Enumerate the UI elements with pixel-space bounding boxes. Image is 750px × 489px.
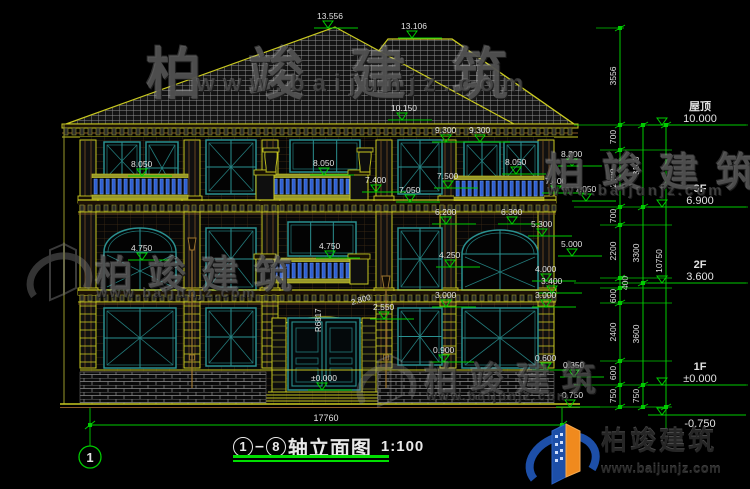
level-flag-label: 3F bbox=[694, 183, 707, 195]
dentil bbox=[472, 205, 476, 211]
level-flag-value: ±0.000 bbox=[683, 373, 717, 385]
eave-dentil bbox=[320, 128, 324, 135]
baluster bbox=[166, 179, 169, 194]
dentil bbox=[112, 205, 116, 211]
eave-dentil bbox=[168, 128, 172, 135]
level-flag-value: 10.000 bbox=[683, 113, 717, 125]
dentil bbox=[120, 205, 124, 211]
eave-dentil bbox=[160, 128, 164, 135]
dentil bbox=[128, 295, 132, 301]
dentil bbox=[176, 205, 180, 211]
dentil bbox=[528, 205, 532, 211]
dentil bbox=[80, 295, 84, 301]
elevation-marker-text: 0.600 bbox=[535, 353, 557, 363]
dentil bbox=[240, 295, 244, 301]
eave-dentil bbox=[96, 128, 100, 135]
dentil bbox=[344, 295, 348, 301]
eave-dentil bbox=[344, 128, 348, 135]
dimension-column: 10750 bbox=[654, 122, 671, 410]
title-scale: 1:100 bbox=[381, 438, 424, 455]
baluster bbox=[286, 263, 289, 278]
dentil bbox=[312, 205, 316, 211]
elevation-marker-text: 8.050 bbox=[131, 159, 153, 169]
eave-cornice bbox=[62, 124, 578, 137]
baluster bbox=[328, 179, 331, 194]
railing-bottom-rail bbox=[92, 195, 188, 199]
dentil bbox=[128, 205, 132, 211]
baluster bbox=[322, 263, 325, 278]
baluster bbox=[322, 179, 325, 194]
elevation-marker-text: 0.900 bbox=[433, 345, 455, 355]
dentil bbox=[392, 205, 396, 211]
elevation-marker-text: 7.400 bbox=[365, 175, 387, 185]
dentil bbox=[152, 295, 156, 301]
eave-dentil bbox=[240, 128, 244, 135]
eave-dentil bbox=[136, 128, 140, 135]
window bbox=[206, 228, 256, 290]
dentil bbox=[272, 205, 276, 211]
baluster bbox=[148, 179, 151, 194]
baluster bbox=[316, 179, 319, 194]
window bbox=[206, 308, 256, 366]
elevation-marker-text: 13.106 bbox=[401, 21, 427, 31]
elevation-marker-text: 7.050 bbox=[575, 184, 597, 194]
eave-dentil bbox=[400, 128, 404, 135]
dentil bbox=[176, 295, 180, 301]
baluster bbox=[298, 263, 301, 278]
baluster bbox=[510, 181, 513, 196]
railing-top-rail bbox=[454, 176, 544, 180]
elevation-drawing-canvas: 13.55613.10610.1509.3009.3008.0508.0508.… bbox=[0, 0, 750, 489]
dentil bbox=[512, 295, 516, 301]
baluster bbox=[334, 179, 337, 194]
dentil bbox=[96, 205, 100, 211]
dentil bbox=[208, 295, 212, 301]
elevation-marker-text: 4.000 bbox=[535, 264, 557, 274]
dentil bbox=[400, 295, 404, 301]
eave-dentil bbox=[520, 128, 524, 135]
eave-dentil bbox=[72, 128, 76, 135]
baluster bbox=[486, 181, 489, 196]
dentil bbox=[304, 205, 308, 211]
dentil bbox=[200, 295, 204, 301]
eave-dentil bbox=[216, 128, 220, 135]
level-flag-label: 2F bbox=[694, 259, 707, 271]
dentil bbox=[552, 205, 556, 211]
elevation-marker-text: 3.000 bbox=[535, 290, 557, 300]
elevation-marker-text: 2.550 bbox=[373, 302, 395, 312]
elevation-marker-text: -0.750 bbox=[559, 390, 583, 400]
dentil bbox=[408, 295, 412, 301]
dim-label: 2400 bbox=[608, 168, 618, 187]
elevation-marker: 13.106 bbox=[398, 21, 442, 38]
eave-dentil bbox=[288, 128, 292, 135]
baluster bbox=[516, 181, 519, 196]
arched-window bbox=[104, 228, 176, 290]
dentil bbox=[424, 295, 428, 301]
dentil bbox=[208, 205, 212, 211]
baluster bbox=[124, 179, 127, 194]
elevation-marker: 0.350 bbox=[560, 360, 604, 377]
dim-label: 3600 bbox=[631, 324, 641, 343]
baluster bbox=[178, 179, 181, 194]
eave-dentil bbox=[376, 128, 380, 135]
elevation-marker-text: 7.400 bbox=[545, 176, 567, 186]
elevation-marker-text: 5.300 bbox=[531, 219, 553, 229]
eave-dentil bbox=[416, 128, 420, 135]
title-axis-to: 8 bbox=[266, 437, 286, 457]
dentil bbox=[248, 205, 252, 211]
level-flag: -0.750 bbox=[648, 408, 746, 430]
dim-label: 2200 bbox=[608, 241, 618, 260]
dentil bbox=[336, 205, 340, 211]
dentil bbox=[496, 295, 500, 301]
dentil bbox=[480, 295, 484, 301]
eave-dentil bbox=[312, 128, 316, 135]
baluster bbox=[112, 179, 115, 194]
baluster bbox=[160, 179, 163, 194]
eave-dentil bbox=[248, 128, 252, 135]
dentil bbox=[536, 205, 540, 211]
dim-label: 750 bbox=[631, 389, 641, 403]
dim-label: 3556 bbox=[608, 66, 618, 85]
entrance-side-pier bbox=[272, 318, 286, 392]
urn-cap bbox=[357, 148, 373, 152]
window bbox=[462, 308, 538, 368]
title-underline-1 bbox=[233, 455, 389, 458]
dentil bbox=[280, 205, 284, 211]
level-flag-value: 6.900 bbox=[686, 195, 714, 207]
dentil bbox=[80, 205, 84, 211]
dentil bbox=[256, 295, 260, 301]
dentil bbox=[280, 295, 284, 301]
baluster bbox=[106, 179, 109, 194]
dentil bbox=[392, 295, 396, 301]
dentil bbox=[328, 295, 332, 301]
dentil bbox=[184, 295, 188, 301]
eave-dentil bbox=[304, 128, 308, 135]
level-flag-value: -0.750 bbox=[684, 418, 715, 430]
dentil bbox=[376, 205, 380, 211]
brick-base-right bbox=[378, 372, 554, 404]
baluster bbox=[492, 181, 495, 196]
urn bbox=[265, 152, 277, 172]
elevation-marker-text: 4.250 bbox=[439, 250, 461, 260]
axis-bubble: 1 bbox=[79, 446, 101, 468]
baluster bbox=[480, 181, 483, 196]
dentil bbox=[504, 295, 508, 301]
dentil bbox=[456, 295, 460, 301]
baluster bbox=[280, 179, 283, 194]
dentil bbox=[464, 205, 468, 211]
baluster bbox=[310, 263, 313, 278]
dentil bbox=[192, 295, 196, 301]
eave-dentil bbox=[256, 128, 260, 135]
dentil bbox=[352, 205, 356, 211]
baluster bbox=[118, 179, 121, 194]
baluster bbox=[304, 179, 307, 194]
dentil bbox=[192, 205, 196, 211]
eave-dentil bbox=[224, 128, 228, 135]
baluster bbox=[334, 263, 337, 278]
dentil bbox=[88, 295, 92, 301]
dentil bbox=[168, 205, 172, 211]
brand-logo-icon bbox=[522, 419, 602, 487]
baluster bbox=[94, 179, 97, 194]
eave-dentil bbox=[496, 128, 500, 135]
dentil bbox=[152, 205, 156, 211]
baluster bbox=[316, 263, 319, 278]
eave-dentil bbox=[192, 128, 196, 135]
eave-dentil bbox=[120, 128, 124, 135]
title-axis-from: 1 bbox=[233, 437, 253, 457]
dim-label: 700 bbox=[608, 209, 618, 223]
dim-label: 3100 bbox=[631, 156, 641, 175]
dentil bbox=[136, 205, 140, 211]
dentil bbox=[136, 295, 140, 301]
window bbox=[398, 228, 442, 290]
window bbox=[104, 308, 176, 368]
elevation-marker-text: 4.750 bbox=[131, 243, 153, 253]
elevation-marker-text: 3.000 bbox=[435, 290, 457, 300]
dentil bbox=[496, 205, 500, 211]
baluster bbox=[310, 179, 313, 194]
dimension-column: 3556700240070022004006002400600750 bbox=[608, 25, 630, 410]
eave-dentil bbox=[200, 128, 204, 135]
dentil bbox=[88, 205, 92, 211]
dimension-column: 310033003600750 bbox=[631, 122, 648, 410]
dentil bbox=[256, 205, 260, 211]
eave-dentil bbox=[424, 128, 428, 135]
dentil bbox=[360, 205, 364, 211]
dentil bbox=[168, 295, 172, 301]
eave-dentil bbox=[272, 128, 276, 135]
elevation-marker: 8.300 bbox=[558, 149, 602, 166]
dentil bbox=[200, 205, 204, 211]
dentil bbox=[232, 295, 236, 301]
dentil bbox=[320, 205, 324, 211]
dentil bbox=[480, 205, 484, 211]
eave-dentil bbox=[296, 128, 300, 135]
dentil bbox=[416, 205, 420, 211]
dentil bbox=[120, 295, 124, 301]
elevation-marker-text: 8.050 bbox=[505, 157, 527, 167]
dentil bbox=[288, 205, 292, 211]
baluster bbox=[130, 179, 133, 194]
arched-window bbox=[462, 230, 538, 290]
eave-dentil bbox=[392, 128, 396, 135]
eave-dentil bbox=[112, 128, 116, 135]
elevation-marker-text: 3.400 bbox=[541, 276, 563, 286]
eave-fascia bbox=[62, 124, 578, 128]
elevation-marker-text: 8.050 bbox=[313, 158, 335, 168]
baluster bbox=[280, 263, 283, 278]
level-flag: 3F6.900 bbox=[648, 183, 746, 207]
dentil bbox=[104, 205, 108, 211]
eave-dentil bbox=[336, 128, 340, 135]
dentil bbox=[472, 295, 476, 301]
eave-dentil bbox=[264, 128, 268, 135]
baluster bbox=[340, 263, 343, 278]
baluster bbox=[346, 179, 349, 194]
ground bbox=[60, 404, 580, 408]
baluster bbox=[136, 179, 139, 194]
eave-dentil bbox=[560, 128, 564, 135]
level-flag: 1F±0.000 bbox=[648, 361, 746, 385]
eave-dentil bbox=[88, 128, 92, 135]
elevation-marker: 13.556 bbox=[314, 11, 358, 28]
baluster bbox=[346, 263, 349, 278]
eave-dentil bbox=[360, 128, 364, 135]
dentil bbox=[488, 295, 492, 301]
eave-dentil bbox=[152, 128, 156, 135]
dentil bbox=[184, 205, 188, 211]
dentil bbox=[296, 205, 300, 211]
eave-dentil bbox=[352, 128, 356, 135]
window bbox=[464, 142, 500, 180]
dentil bbox=[224, 295, 228, 301]
roof bbox=[66, 27, 574, 124]
dentil bbox=[400, 205, 404, 211]
baluster bbox=[292, 179, 295, 194]
dentil bbox=[416, 295, 420, 301]
level-flag: 屋顶10.000 bbox=[648, 100, 746, 125]
dim-label: 750 bbox=[608, 389, 618, 403]
dentil bbox=[160, 205, 164, 211]
eave-dentil bbox=[176, 128, 180, 135]
eave-dentil bbox=[280, 128, 284, 135]
dentil bbox=[232, 205, 236, 211]
baluster bbox=[540, 181, 543, 196]
dentil bbox=[144, 295, 148, 301]
dentil bbox=[216, 205, 220, 211]
house-facade bbox=[60, 27, 580, 408]
elevation-marker-text: ±0.000 bbox=[311, 373, 337, 383]
eave-dentil bbox=[456, 128, 460, 135]
overall-width-text: 17760 bbox=[313, 413, 338, 423]
eave-dentil bbox=[208, 128, 212, 135]
dim-label: 600 bbox=[608, 366, 618, 380]
dim-label: 700 bbox=[608, 130, 618, 144]
urn-cap bbox=[263, 148, 279, 152]
elevation-marker-text: 8.300 bbox=[561, 149, 583, 159]
elevation-marker-text: 6.300 bbox=[501, 207, 523, 217]
eave-dentil bbox=[528, 128, 532, 135]
eave-dentil bbox=[184, 128, 188, 135]
dim-label: 10750 bbox=[654, 249, 664, 273]
level-flag-label: 1F bbox=[694, 361, 707, 373]
dentil bbox=[264, 205, 268, 211]
baluster bbox=[534, 181, 537, 196]
balcony-railing bbox=[92, 174, 188, 199]
dentil bbox=[528, 295, 532, 301]
title-underline-2 bbox=[233, 460, 389, 462]
baluster bbox=[292, 263, 295, 278]
elevation-marker-text: 10.150 bbox=[391, 103, 417, 113]
eave-dentil bbox=[128, 128, 132, 135]
baluster bbox=[100, 179, 103, 194]
axis-bubble-number: 1 bbox=[86, 450, 93, 465]
dentil bbox=[312, 295, 316, 301]
baluster bbox=[504, 181, 507, 196]
eave-dentil bbox=[512, 128, 516, 135]
dentil bbox=[104, 295, 108, 301]
dentil bbox=[376, 295, 380, 301]
dentil bbox=[272, 295, 276, 301]
eave-dentil bbox=[552, 128, 556, 135]
dentil bbox=[288, 295, 292, 301]
dentil bbox=[216, 295, 220, 301]
elevation-marker-text: 6.200 bbox=[435, 207, 457, 217]
dentil bbox=[464, 295, 468, 301]
eave-dentil bbox=[232, 128, 236, 135]
window bbox=[398, 308, 442, 365]
baluster bbox=[154, 179, 157, 194]
level-flag-value: 3.600 bbox=[686, 271, 714, 283]
eave-dentil bbox=[408, 128, 412, 135]
dim-label: 2400 bbox=[608, 322, 618, 341]
baluster bbox=[286, 179, 289, 194]
eave-dentil bbox=[144, 128, 148, 135]
level-flag-label: 屋顶 bbox=[689, 100, 711, 113]
eave-dentil bbox=[104, 128, 108, 135]
dim-label: 600 bbox=[608, 289, 618, 303]
dentil bbox=[296, 295, 300, 301]
baluster bbox=[528, 181, 531, 196]
elevation-marker-text: 4.750 bbox=[319, 241, 341, 251]
dentil bbox=[456, 205, 460, 211]
eave-dentil bbox=[368, 128, 372, 135]
eave-dentil bbox=[464, 128, 468, 135]
eave-dentil bbox=[328, 128, 332, 135]
dentil bbox=[520, 295, 524, 301]
dentil bbox=[224, 205, 228, 211]
dentil bbox=[368, 205, 372, 211]
dentil bbox=[304, 295, 308, 301]
elevation-marker-text: 9.300 bbox=[435, 125, 457, 135]
entrance bbox=[262, 317, 386, 401]
eave-dentil bbox=[544, 128, 548, 135]
baluster bbox=[498, 181, 501, 196]
pedestal-cap bbox=[254, 254, 276, 259]
dentil bbox=[96, 295, 100, 301]
dentil bbox=[344, 205, 348, 211]
dentil bbox=[488, 205, 492, 211]
window bbox=[206, 140, 256, 194]
elevation-marker-text: 7.500 bbox=[437, 171, 459, 181]
dentil bbox=[424, 205, 428, 211]
baluster bbox=[184, 179, 187, 194]
elevation-marker-text: 7.050 bbox=[399, 185, 421, 195]
dentil bbox=[248, 295, 252, 301]
baluster bbox=[298, 179, 301, 194]
eave-dentil bbox=[536, 128, 540, 135]
dentil bbox=[144, 205, 148, 211]
brick-base-left bbox=[80, 372, 266, 404]
baluster bbox=[172, 179, 175, 194]
eave-dentil bbox=[384, 128, 388, 135]
dim-label: 3300 bbox=[631, 243, 641, 262]
dentil bbox=[160, 295, 164, 301]
baluster bbox=[328, 263, 331, 278]
arc-note-text: R6817 bbox=[314, 308, 323, 332]
elevation-marker-text: 13.556 bbox=[317, 11, 343, 21]
dentil bbox=[264, 295, 268, 301]
eave-dentil bbox=[64, 128, 68, 135]
cad-viewport: 13.55613.10610.1509.3009.3008.0508.0508.… bbox=[0, 0, 750, 489]
dentil bbox=[320, 295, 324, 301]
dentil bbox=[336, 295, 340, 301]
